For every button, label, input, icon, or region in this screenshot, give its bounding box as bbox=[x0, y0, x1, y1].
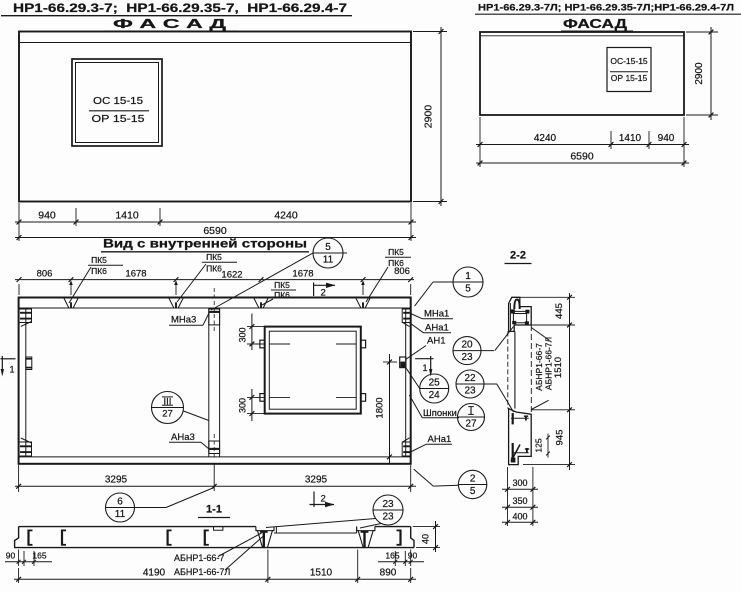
svg-text:1410: 1410 bbox=[619, 133, 642, 144]
svg-text:4190: 4190 bbox=[143, 568, 166, 579]
svg-text:ОС 15-15: ОС 15-15 bbox=[93, 95, 143, 107]
svg-text:ПК6: ПК6 bbox=[91, 266, 107, 276]
svg-text:20: 20 bbox=[461, 339, 473, 350]
svg-text:ПК6: ПК6 bbox=[274, 290, 290, 300]
svg-text:400: 400 bbox=[512, 512, 527, 522]
svg-text:ПК5: ПК5 bbox=[388, 247, 404, 257]
svg-text:ПК5: ПК5 bbox=[206, 252, 222, 262]
svg-text:2900: 2900 bbox=[423, 105, 435, 129]
svg-text:1: 1 bbox=[10, 365, 15, 375]
svg-text:ОР 15-15: ОР 15-15 bbox=[92, 113, 145, 125]
svg-text:940: 940 bbox=[38, 210, 56, 222]
svg-text:1510: 1510 bbox=[310, 568, 333, 579]
svg-text:940: 940 bbox=[658, 133, 675, 144]
svg-text:ПК5: ПК5 bbox=[91, 255, 107, 265]
svg-text:1510: 1510 bbox=[553, 357, 564, 378]
svg-text:МНа3: МНа3 bbox=[171, 315, 196, 326]
svg-text:445: 445 bbox=[554, 303, 565, 319]
svg-text:1800: 1800 bbox=[375, 397, 386, 418]
svg-text:165: 165 bbox=[32, 551, 46, 561]
svg-text:3295: 3295 bbox=[305, 475, 328, 486]
svg-text:5: 5 bbox=[470, 486, 476, 497]
svg-text:4240: 4240 bbox=[274, 210, 298, 222]
svg-text:1622: 1622 bbox=[221, 270, 242, 281]
svg-text:АН1: АН1 bbox=[427, 336, 445, 347]
svg-text:300: 300 bbox=[238, 398, 248, 413]
svg-text:165: 165 bbox=[385, 551, 399, 561]
svg-text:300: 300 bbox=[238, 327, 248, 342]
svg-text:890: 890 bbox=[380, 568, 397, 579]
svg-text:2: 2 bbox=[321, 494, 326, 505]
svg-text:40: 40 bbox=[421, 534, 431, 544]
svg-text:I: I bbox=[470, 406, 473, 417]
svg-text:ПК6: ПК6 bbox=[206, 264, 222, 274]
svg-text:2900: 2900 bbox=[694, 62, 705, 85]
svg-text:НР1-66.29.3-7; НР1-66.29.35-7: НР1-66.29.3-7; НР1-66.29.35-7, НР1-66.29… bbox=[13, 3, 347, 15]
svg-text:25: 25 bbox=[429, 377, 441, 388]
svg-text:24: 24 bbox=[429, 390, 441, 401]
svg-text:АНа1: АНа1 bbox=[425, 323, 449, 334]
svg-text:АНа3: АНа3 bbox=[171, 432, 195, 443]
svg-text:5: 5 bbox=[325, 242, 331, 253]
svg-text:125: 125 bbox=[534, 438, 544, 452]
svg-text:3295: 3295 bbox=[105, 475, 128, 486]
svg-text:МНа1: МНа1 bbox=[424, 309, 449, 320]
svg-text:ОС-15-15: ОС-15-15 bbox=[610, 56, 648, 66]
svg-text:АБНР1-66-7: АБНР1-66-7 bbox=[174, 553, 224, 563]
svg-text:6: 6 bbox=[117, 496, 123, 507]
svg-text:2: 2 bbox=[470, 473, 476, 484]
svg-text:27: 27 bbox=[162, 409, 173, 420]
svg-text:ПК6: ПК6 bbox=[388, 258, 404, 268]
svg-text:АБНР1-66-7: АБНР1-66-7 bbox=[534, 343, 544, 391]
svg-text:11: 11 bbox=[115, 509, 126, 520]
svg-text:1678: 1678 bbox=[125, 269, 146, 280]
svg-text:Ф А С А Д: Ф А С А Д bbox=[113, 17, 226, 31]
svg-text:945: 945 bbox=[555, 430, 566, 446]
svg-text:АНа1: АНа1 bbox=[428, 434, 452, 445]
svg-text:806: 806 bbox=[37, 269, 53, 280]
svg-text:ФАСАД: ФАСАД bbox=[563, 17, 627, 31]
svg-text:27: 27 bbox=[465, 419, 477, 430]
svg-text:90: 90 bbox=[408, 551, 418, 561]
svg-text:23: 23 bbox=[461, 352, 473, 363]
svg-text:300: 300 bbox=[512, 478, 527, 488]
svg-text:5: 5 bbox=[465, 284, 471, 295]
svg-text:6590: 6590 bbox=[570, 151, 594, 163]
svg-text:Вид с внутренней стороны: Вид с внутренней стороны bbox=[103, 237, 307, 251]
svg-text:350: 350 bbox=[512, 496, 527, 506]
svg-text:АБНР1-66-7Л: АБНР1-66-7Л bbox=[174, 567, 230, 577]
svg-text:1-1: 1-1 bbox=[206, 504, 222, 516]
svg-text:22: 22 bbox=[464, 373, 476, 384]
svg-text:23: 23 bbox=[382, 499, 394, 510]
svg-text:2-2: 2-2 bbox=[510, 250, 526, 262]
svg-text:4240: 4240 bbox=[534, 133, 557, 144]
svg-text:6590: 6590 bbox=[203, 225, 227, 237]
svg-text:НР1-66.29.3-7Л; НР1-66.29.35-7: НР1-66.29.3-7Л; НР1-66.29.35-7Л;НР1-66.2… bbox=[478, 3, 734, 14]
svg-text:23: 23 bbox=[382, 512, 394, 523]
svg-text:1410: 1410 bbox=[115, 210, 139, 222]
svg-text:1: 1 bbox=[465, 271, 471, 282]
svg-text:1678: 1678 bbox=[292, 269, 313, 280]
svg-text:ПК5: ПК5 bbox=[274, 280, 290, 290]
svg-text:90: 90 bbox=[6, 551, 16, 561]
svg-text:ОР 15-15: ОР 15-15 bbox=[611, 73, 648, 83]
svg-text:АБНР1-66-7Л: АБНР1-66-7Л bbox=[544, 337, 554, 390]
svg-text:1: 1 bbox=[423, 363, 428, 373]
svg-text:23: 23 bbox=[464, 386, 476, 397]
svg-text:11: 11 bbox=[323, 255, 334, 266]
